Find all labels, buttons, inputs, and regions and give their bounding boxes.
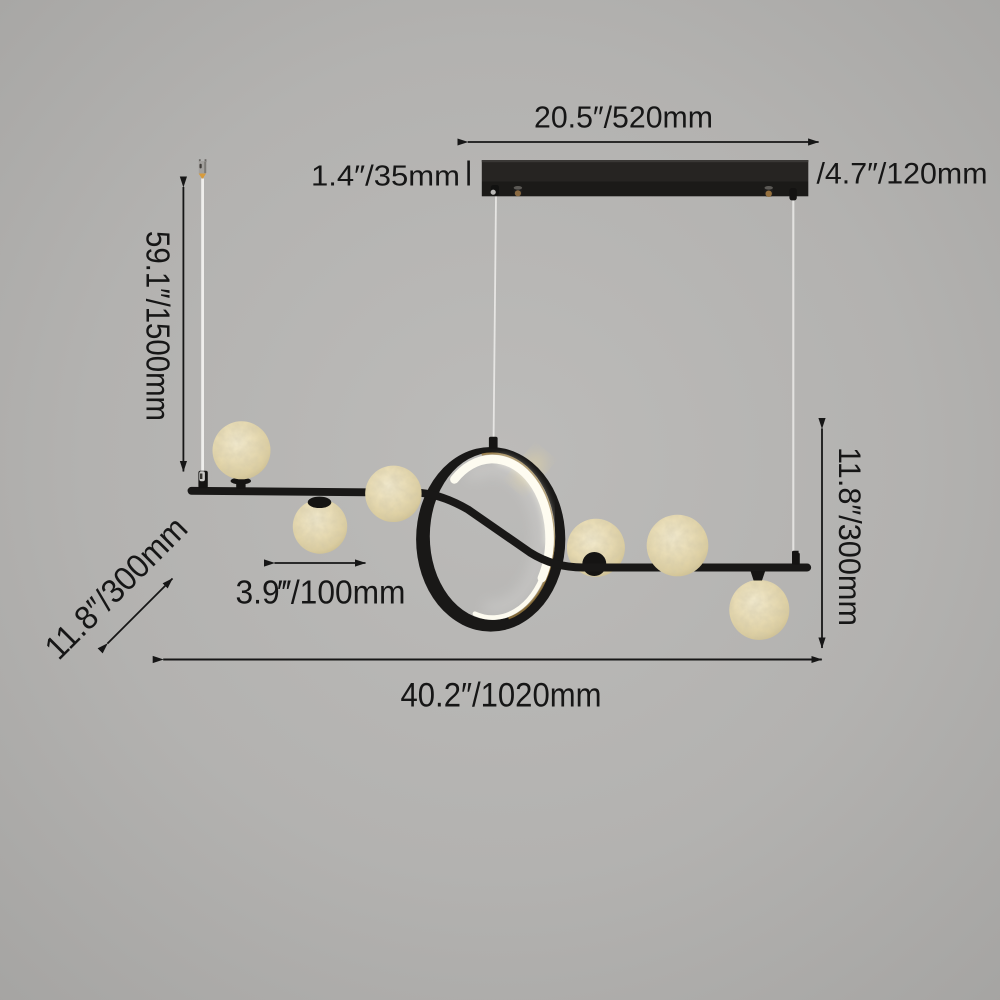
svg-text:20.5″/520mm: 20.5″/520mm [534,101,713,135]
svg-text:11.8″/300mm: 11.8″/300mm [832,447,868,626]
svg-text:/4.7″/120mm: /4.7″/120mm [817,158,988,191]
svg-text:59.1″/1500mm: 59.1″/1500mm [140,231,177,421]
svg-text:3.9‴/100mm: 3.9‴/100mm [236,574,406,611]
svg-text:1.4″/35mm: 1.4″/35mm [311,161,460,193]
svg-text:40.2″/1020mm: 40.2″/1020mm [401,677,602,715]
